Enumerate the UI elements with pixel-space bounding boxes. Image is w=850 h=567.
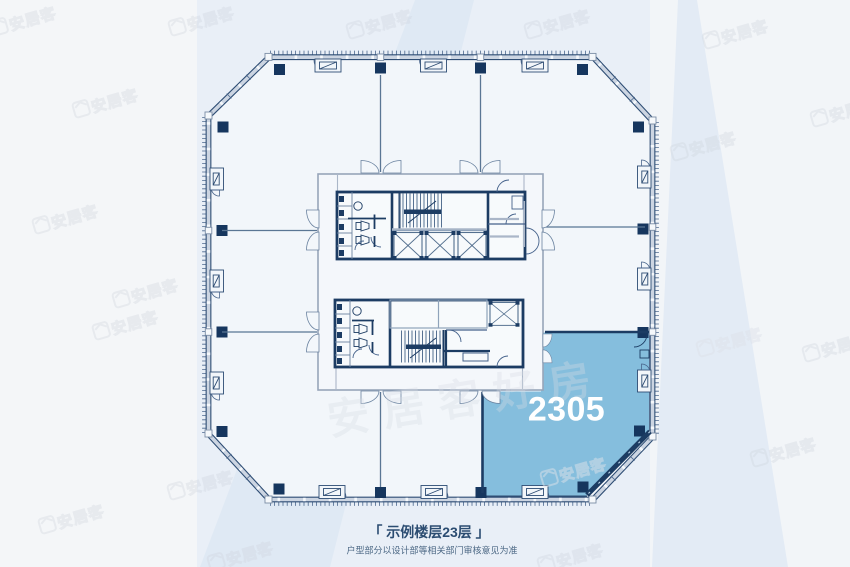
svg-text:「 示例楼层23层 」: 「 示例楼层23层 」: [368, 524, 489, 540]
svg-text:2305: 2305: [528, 390, 605, 428]
svg-text:户型部分以设计部等相关部门审核意见为准: 户型部分以设计部等相关部门审核意见为准: [346, 545, 517, 556]
